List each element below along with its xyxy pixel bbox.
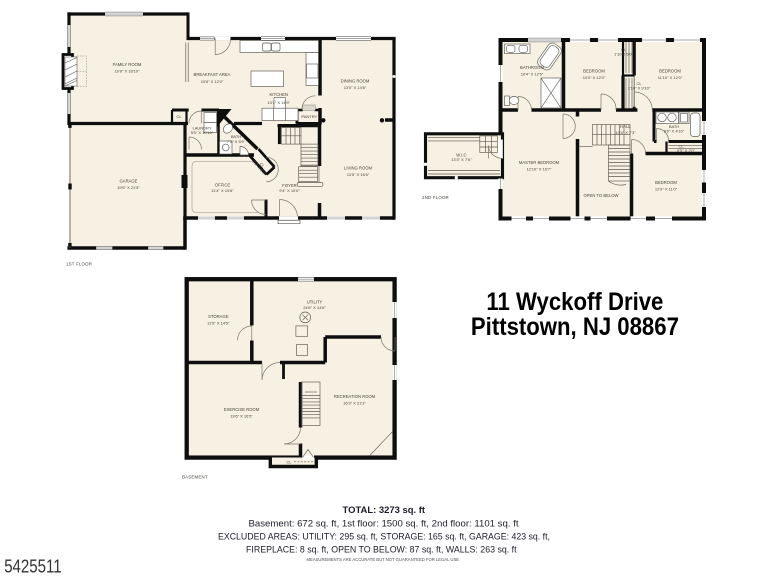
svg-text:CL: CL <box>176 114 182 119</box>
svg-text:13'5" X 16'6": 13'5" X 16'6" <box>347 172 370 177</box>
svg-text:10'6" X 12'0": 10'6" X 12'0" <box>201 79 224 84</box>
svg-text:PANTRY: PANTRY <box>301 114 317 119</box>
svg-text:24'6" X 14'6": 24'6" X 14'6" <box>303 305 326 310</box>
svg-text:19'6" X 16'5": 19'6" X 16'5" <box>230 414 253 419</box>
svg-text:BEDROOM: BEDROOM <box>659 69 681 74</box>
svg-text:KITCHEN: KITCHEN <box>270 92 288 97</box>
svg-text:1ST FLOOR: 1ST FLOOR <box>66 262 92 267</box>
svg-text:Basement: 672 sq. ft, 1st floo: Basement: 672 sq. ft, 1st floor: 1500 sq… <box>249 519 519 529</box>
svg-text:1'10" X 9'10": 1'10" X 9'10" <box>628 86 651 91</box>
svg-text:RECREATION ROOM: RECREATION ROOM <box>334 394 376 399</box>
svg-text:BATHROOM: BATHROOM <box>520 65 544 70</box>
svg-text:13'3" X 7'6": 13'3" X 7'6" <box>451 157 472 162</box>
svg-text:11'10" X 12'0": 11'10" X 12'0" <box>658 75 683 80</box>
svg-text:EXCLUDED AREAS: UTILITY: 295 s: EXCLUDED AREAS: UTILITY: 295 sq. ft, STO… <box>218 532 550 542</box>
svg-text:BEDROOM: BEDROOM <box>583 69 605 74</box>
svg-text:13'4" X 7'3": 13'4" X 7'3" <box>615 130 636 135</box>
svg-text:FIREPLACE: 8 sq. ft, OPEN TO B: FIREPLACE: 8 sq. ft, OPEN TO BELOW: 87 s… <box>246 545 517 555</box>
svg-text:5425511: 5425511 <box>4 557 62 576</box>
svg-text:5'5" X 10'10": 5'5" X 10'10" <box>191 130 214 135</box>
svg-text:16'3" X 21'3": 16'3" X 21'3" <box>343 401 366 406</box>
svg-text:UTILITY: UTILITY <box>307 299 323 304</box>
svg-text:9'4" X 10'0": 9'4" X 10'0" <box>279 188 300 193</box>
svg-text:10'4" X 12'5": 10'4" X 12'5" <box>521 72 544 77</box>
svg-text:DINING ROOM: DINING ROOM <box>341 79 370 84</box>
svg-text:10'9" X 18'10": 10'9" X 18'10" <box>115 69 140 74</box>
svg-text:1'10 X 5'0": 1'10 X 5'0" <box>614 52 634 57</box>
svg-text:2ND FLOOR: 2ND FLOOR <box>422 195 449 200</box>
svg-text:STORAGE: STORAGE <box>208 314 229 319</box>
svg-text:MASTER BEDROOM: MASTER BEDROOM <box>519 160 560 165</box>
svg-text:11'5" X 14'5": 11'5" X 14'5" <box>207 320 230 325</box>
svg-text:HALL: HALL <box>620 124 631 129</box>
svg-text:GARAGE: GARAGE <box>120 179 138 184</box>
svg-text:OPEN TO BELOW: OPEN TO BELOW <box>584 193 619 198</box>
svg-text:7'5" X 5'9": 7'5" X 5'9" <box>227 139 246 144</box>
svg-text:OFFICE: OFFICE <box>215 183 231 188</box>
svg-text:BEDROOM: BEDROOM <box>655 180 677 185</box>
svg-text:6'5" X 2'0": 6'5" X 2'0" <box>677 148 696 153</box>
svg-text:13'1" X 14'9": 13'1" X 14'9" <box>267 100 290 105</box>
svg-text:MEASUREMENTS ARE ACCURATE BUT: MEASUREMENTS ARE ACCURATE BUT NOT GUARAN… <box>307 557 460 562</box>
svg-text:11 Wyckoff Drive: 11 Wyckoff Drive <box>486 288 663 316</box>
svg-text:10'0" X 12'0": 10'0" X 12'0" <box>583 75 606 80</box>
svg-text:Pittstown, NJ 08867: Pittstown, NJ 08867 <box>471 313 679 341</box>
svg-text:BREAKFAST AREA: BREAKFAST AREA <box>194 72 231 77</box>
svg-text:8'6" X 4'10": 8'6" X 4'10" <box>664 129 685 134</box>
svg-text:13'0" X 14'6": 13'0" X 14'6" <box>344 85 367 90</box>
svg-text:19'5" X 21'5": 19'5" X 21'5" <box>117 185 140 190</box>
svg-text:EXERCISE ROOM: EXERCISE ROOM <box>224 407 260 412</box>
svg-text:LIVING ROOM: LIVING ROOM <box>344 165 372 170</box>
svg-text:11'4" X 10'6": 11'4" X 10'6" <box>211 188 234 193</box>
svg-text:FAMILY ROOM: FAMILY ROOM <box>113 62 142 67</box>
svg-text:BASEMENT: BASEMENT <box>182 474 208 479</box>
svg-text:CL: CL <box>286 459 292 464</box>
svg-text:12'9" X 11'0": 12'9" X 11'0" <box>655 187 678 192</box>
svg-text:TOTAL: 3273 sq. ft: TOTAL: 3273 sq. ft <box>343 505 426 515</box>
svg-text:12'10" X 16'7": 12'10" X 16'7" <box>527 166 552 171</box>
